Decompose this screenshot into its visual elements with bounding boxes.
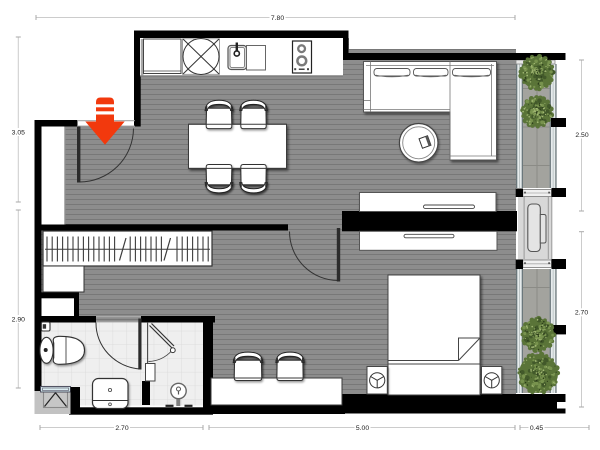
svg-text:7.80: 7.80 <box>271 15 284 22</box>
svg-text:2.90: 2.90 <box>12 316 25 323</box>
svg-text:2.70: 2.70 <box>115 425 128 432</box>
svg-text:2.50: 2.50 <box>575 132 588 139</box>
svg-text:5.00: 5.00 <box>356 425 369 432</box>
svg-text:0.45: 0.45 <box>530 425 543 432</box>
svg-text:3.05: 3.05 <box>12 129 25 136</box>
svg-text:2.70: 2.70 <box>575 310 588 317</box>
